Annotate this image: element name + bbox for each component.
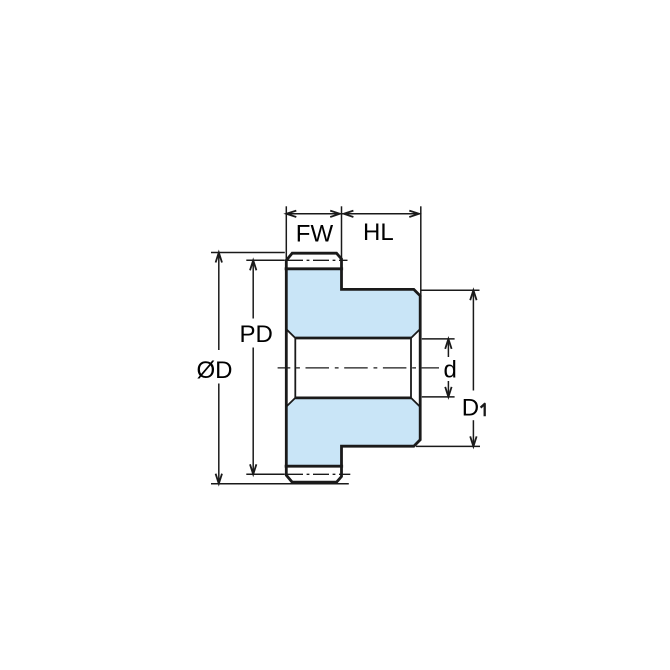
svg-text:HL: HL (363, 219, 394, 246)
svg-text:FW: FW (296, 221, 334, 248)
svg-text:D: D (462, 395, 479, 422)
svg-text:PD: PD (240, 321, 273, 348)
svg-text:ØD: ØD (197, 357, 233, 384)
svg-text:d: d (444, 357, 457, 384)
